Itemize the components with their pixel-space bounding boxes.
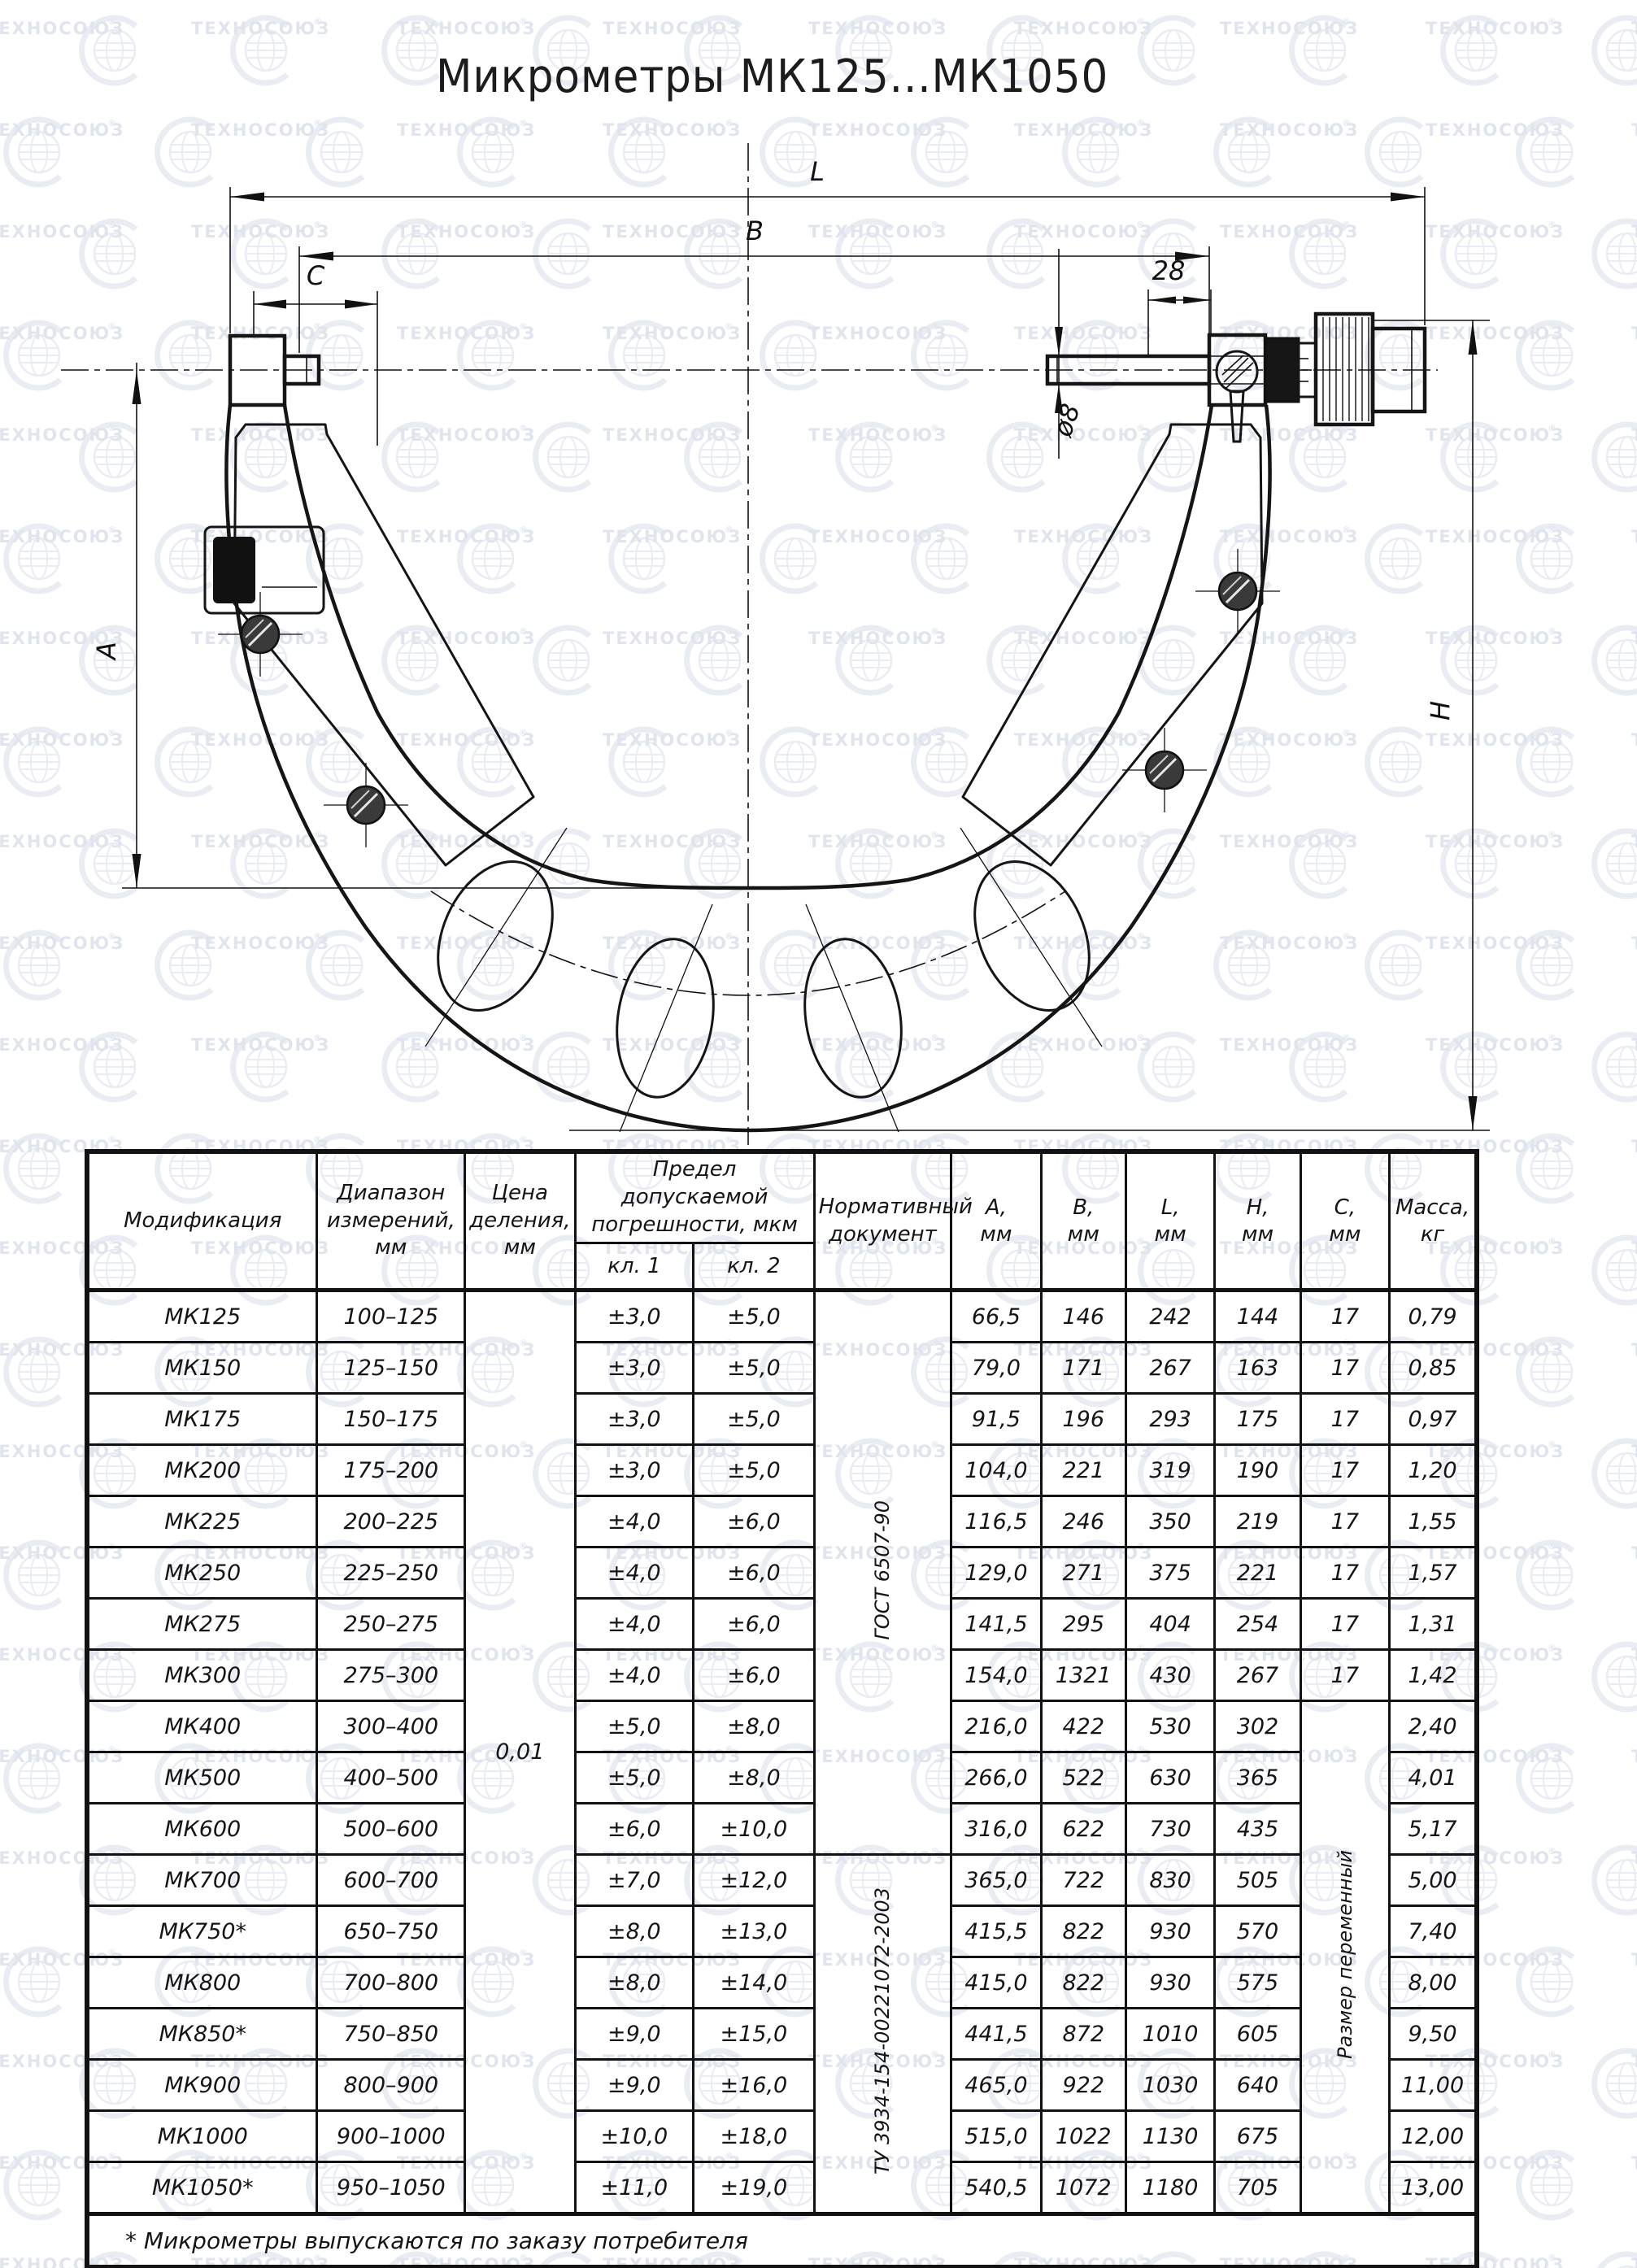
col-header-l-label: L, — [1130, 1195, 1210, 1221]
cell-modification: МК275 — [87, 1599, 317, 1650]
cell-a: 104,0 — [951, 1445, 1041, 1496]
col-header-l: L, мм — [1125, 1151, 1214, 1291]
watermark-text: ТЕХНОСОЮЗ — [1631, 1543, 1637, 1563]
watermark-text: ТЕХНОСОЮЗ — [1631, 19, 1637, 38]
cell-class1: ±5,0 — [575, 1701, 694, 1752]
cell-class1: ±3,0 — [575, 1445, 694, 1496]
cell-b: 922 — [1041, 2060, 1125, 2111]
cell-range: 175–200 — [317, 1445, 465, 1496]
watermark-reg-icon: ® — [1548, 2151, 1556, 2161]
cell-range: 150–175 — [317, 1394, 465, 1445]
cell-mass: 13,00 — [1390, 2162, 1477, 2214]
watermark-reg-icon: ® — [725, 118, 734, 128]
cell-range: 950–1050 — [317, 2162, 465, 2214]
cell-range: 300–400 — [317, 1701, 465, 1752]
cell-class2: ±15,0 — [694, 2009, 815, 2060]
cell-c: 17 — [1300, 1291, 1389, 1343]
col-header-h-unit: мм — [1219, 1221, 1295, 1248]
cell-h: 435 — [1215, 1804, 1300, 1855]
cell-b: 171 — [1041, 1343, 1125, 1394]
cell-c: 17 — [1300, 1650, 1389, 1701]
cell-norm-doc-gost-text: ГОСТ 6507-90 — [873, 1500, 892, 1640]
cell-division-value: 0,01 — [465, 1291, 575, 2214]
watermark-text: ТЕХНОСОЮЗ — [1631, 2255, 1637, 2268]
cell-h: 505 — [1215, 1855, 1300, 1906]
cell-b: 146 — [1041, 1291, 1125, 1343]
cell-a: 266,0 — [951, 1752, 1041, 1804]
cell-modification: МК800 — [87, 1957, 317, 2009]
watermark-reg-icon: ® — [1548, 1439, 1556, 1450]
frame-screws — [218, 549, 1280, 847]
spec-row: МК300275–300±4,0±6,0154,01321430267171,4… — [87, 1650, 1477, 1701]
cell-a: 79,0 — [951, 1343, 1041, 1394]
col-header-error-limit: Предел допускаемой погрешности, мкм — [575, 1151, 814, 1243]
col-header-c: С, мм — [1300, 1151, 1389, 1291]
cell-class2: ±8,0 — [694, 1701, 815, 1752]
cell-l: 319 — [1125, 1445, 1214, 1496]
spec-row: МК400300–400±5,0±8,0216,0422530302Размер… — [87, 1701, 1477, 1752]
cell-class1: ±10,0 — [575, 2111, 694, 2162]
spec-row: МК700600–700±7,0±12,0ТУ 3934-154-0022107… — [87, 1855, 1477, 1906]
watermark-reg-icon: ® — [725, 16, 734, 27]
cell-modification: МК200 — [87, 1445, 317, 1496]
cell-a: 415,0 — [951, 1957, 1041, 2009]
watermark-reg-icon: ® — [313, 118, 322, 128]
watermark-reg-icon: ® — [930, 16, 939, 27]
cell-b: 1072 — [1041, 2162, 1125, 2214]
col-header-b-label: В, — [1046, 1195, 1121, 1221]
cell-mass: 0,97 — [1390, 1394, 1477, 1445]
watermark-text: ТЕХНОСОЮЗ — [397, 19, 536, 38]
dimension-C: C — [254, 260, 377, 446]
watermark-reg-icon: ® — [1342, 118, 1351, 128]
cell-c: 17 — [1300, 1599, 1389, 1650]
cell-mass: 5,17 — [1390, 1804, 1477, 1855]
cell-class2: ±5,0 — [694, 1343, 815, 1394]
cell-h: 365 — [1215, 1752, 1300, 1804]
cell-range: 500–600 — [317, 1804, 465, 1855]
cell-mass: 5,00 — [1390, 1855, 1477, 1906]
cell-class1: ±5,0 — [575, 1752, 694, 1804]
cell-l: 1010 — [1125, 2009, 1214, 2060]
col-header-l-unit: мм — [1130, 1221, 1210, 1248]
col-header-class2: кл. 2 — [694, 1243, 815, 1291]
cell-c: 17 — [1300, 1548, 1389, 1599]
cell-b: 221 — [1041, 1445, 1125, 1496]
watermark-text: ТЕХНОСОЮЗ — [1631, 1747, 1637, 1766]
cell-a: 116,5 — [951, 1496, 1041, 1548]
cell-range: 800–900 — [317, 2060, 465, 2111]
watermark-text: ТЕХНОСОЮЗ — [1014, 19, 1153, 38]
micrometer-head — [1217, 314, 1425, 442]
cell-range: 125–150 — [317, 1343, 465, 1394]
col-header-mass-label: Масса, — [1394, 1195, 1471, 1221]
cell-class2: ±19,0 — [694, 2162, 815, 2214]
cell-a: 141,5 — [951, 1599, 1041, 1650]
cell-class1: ±8,0 — [575, 1906, 694, 1957]
screw-icon — [324, 763, 408, 847]
watermark-text: ТЕХНОСОЮЗ — [1426, 19, 1565, 38]
cell-class1: ±7,0 — [575, 1855, 694, 1906]
cell-a: 465,0 — [951, 2060, 1041, 2111]
dimension-28: 28 — [1148, 255, 1211, 355]
cell-mass: 8,00 — [1390, 1957, 1477, 2009]
dim-label-A: A — [91, 642, 122, 661]
cell-norm-doc-tu: ТУ 3934-154-00221072-2003 — [814, 1855, 951, 2214]
cell-l: 430 — [1125, 1650, 1214, 1701]
cell-h: 605 — [1215, 2009, 1300, 2060]
watermark-text: ТЕХНОСОЮЗ — [1220, 19, 1359, 38]
watermark-reg-icon: ® — [1548, 16, 1556, 27]
table-header: Модификация Диапазон измерений, мм Цена … — [87, 1151, 1477, 1291]
spec-row: МК125100–1250,01±3,0±5,0ГОСТ 6507-9066,5… — [87, 1291, 1477, 1343]
cell-h: 570 — [1215, 1906, 1300, 1957]
cell-c: 17 — [1300, 1445, 1389, 1496]
spec-row: МК175150–175±3,0±5,091,5196293175170,97 — [87, 1394, 1477, 1445]
screw-icon — [1195, 549, 1280, 633]
cell-class1: ±6,0 — [575, 1804, 694, 1855]
cell-class1: ±4,0 — [575, 1548, 694, 1599]
cell-l: 930 — [1125, 1906, 1214, 1957]
cell-mass: 0,79 — [1390, 1291, 1477, 1343]
spec-row: МК1000900–1000±10,0±18,0515,010221130675… — [87, 2111, 1477, 2162]
cell-modification: МК500 — [87, 1752, 317, 1804]
cell-modification: МК175 — [87, 1394, 317, 1445]
spec-row: МК200175–200±3,0±5,0104,0221319190171,20 — [87, 1445, 1477, 1496]
cell-b: 722 — [1041, 1855, 1125, 1906]
cell-h: 302 — [1215, 1701, 1300, 1752]
col-header-h-label: Н, — [1219, 1195, 1295, 1221]
spec-row: МК150125–150±3,0±5,079,0171267163170,85 — [87, 1343, 1477, 1394]
cell-mass: 11,00 — [1390, 2060, 1477, 2111]
cell-h: 144 — [1215, 1291, 1300, 1343]
cell-class1: ±4,0 — [575, 1650, 694, 1701]
col-header-b-unit: мм — [1046, 1221, 1121, 1248]
cell-l: 930 — [1125, 1957, 1214, 2009]
spec-table: Модификация Диапазон измерений, мм Цена … — [85, 1149, 1479, 2268]
cell-h: 675 — [1215, 2111, 1300, 2162]
cell-mass: 1,57 — [1390, 1548, 1477, 1599]
thimble-knurling — [1323, 317, 1369, 421]
cell-modification: МК850* — [87, 2009, 317, 2060]
dimension-B: B — [299, 215, 1209, 353]
cell-h: 175 — [1215, 1394, 1300, 1445]
cell-h: 190 — [1215, 1445, 1300, 1496]
cell-l: 630 — [1125, 1752, 1214, 1804]
cell-l: 293 — [1125, 1394, 1214, 1445]
cell-l: 1180 — [1125, 2162, 1214, 2214]
cell-norm-doc-gost: ГОСТ 6507-90 — [814, 1291, 951, 1855]
cell-b: 1321 — [1041, 1650, 1125, 1701]
cell-mass: 1,31 — [1390, 1599, 1477, 1650]
cell-h: 640 — [1215, 2060, 1300, 2111]
watermark-reg-icon: ® — [1548, 1236, 1556, 1247]
cell-modification: МК125 — [87, 1291, 317, 1343]
cell-class2: ±6,0 — [694, 1599, 815, 1650]
watermark-reg-icon: ® — [930, 118, 939, 128]
page-title: Микрометры МК125...МК1050 — [0, 50, 1545, 103]
cell-range: 225–250 — [317, 1548, 465, 1599]
page-title-text: Микрометры МК125...МК1050 — [436, 50, 1108, 103]
cell-b: 822 — [1041, 1906, 1125, 1957]
cell-class1: ±4,0 — [575, 1496, 694, 1548]
watermark-reg-icon: ® — [519, 16, 528, 27]
col-header-c-unit: мм — [1305, 1221, 1385, 1248]
cell-a: 316,0 — [951, 1804, 1041, 1855]
watermark-reg-icon: ® — [1548, 2049, 1556, 2060]
cell-l: 404 — [1125, 1599, 1214, 1650]
cell-class1: ±3,0 — [575, 1343, 694, 1394]
dimension-L: L — [230, 156, 1425, 333]
cell-l: 830 — [1125, 1855, 1214, 1906]
col-header-norm-doc: Нормативный документ — [814, 1151, 951, 1291]
cell-modification: МК250 — [87, 1548, 317, 1599]
watermark-text: ТЕХНОСОЮЗ — [191, 19, 330, 38]
watermark-reg-icon: ® — [1548, 1541, 1556, 1552]
spec-row: МК800700–800±8,0±14,0415,08229305758,00 — [87, 1957, 1477, 2009]
cell-b: 1022 — [1041, 2111, 1125, 2162]
watermark-text: ТЕХНОСОЮЗ — [0, 19, 124, 38]
cell-modification: МК225 — [87, 1496, 317, 1548]
cell-class1: ±3,0 — [575, 1291, 694, 1343]
cell-range: 250–275 — [317, 1599, 465, 1650]
cell-range: 700–800 — [317, 1957, 465, 2009]
cell-b: 246 — [1041, 1496, 1125, 1548]
cell-class2: ±5,0 — [694, 1394, 815, 1445]
col-header-c-label: С, — [1305, 1195, 1385, 1221]
col-header-a: А, мм — [951, 1151, 1041, 1291]
watermark-reg-icon: ® — [313, 16, 322, 27]
cell-b: 872 — [1041, 2009, 1125, 2060]
cell-range: 650–750 — [317, 1906, 465, 1957]
cell-range: 900–1000 — [317, 2111, 465, 2162]
col-header-h: Н, мм — [1215, 1151, 1300, 1291]
watermark-reg-icon: ® — [1548, 1846, 1556, 1857]
col-header-mass: Масса, кг — [1390, 1151, 1477, 1291]
cell-a: 415,5 — [951, 1906, 1041, 1957]
cell-range: 275–300 — [317, 1650, 465, 1701]
cell-class2: ±16,0 — [694, 2060, 815, 2111]
col-header-b: В, мм — [1041, 1151, 1125, 1291]
cell-a: 515,0 — [951, 2111, 1041, 2162]
table-footer: * Микрометры выпускаются по заказу потре… — [87, 2214, 1477, 2268]
cell-b: 295 — [1041, 1599, 1125, 1650]
cell-l: 242 — [1125, 1291, 1214, 1343]
spec-row: МК900800–900±9,0±16,0465,0922103064011,0… — [87, 2060, 1477, 2111]
catalog-page: ТЕХНОСОЮЗ®ТЕХНОСОЮЗ®ТЕХНОСОЮЗ®ТЕХНОСОЮЗ®… — [0, 0, 1637, 2268]
cell-class1: ±9,0 — [575, 2060, 694, 2111]
cell-l: 375 — [1125, 1548, 1214, 1599]
cell-a: 91,5 — [951, 1394, 1041, 1445]
cell-mass: 1,55 — [1390, 1496, 1477, 1548]
cell-class2: ±10,0 — [694, 1804, 815, 1855]
spec-row: МК275250–275±4,0±6,0141,5295404254171,31 — [87, 1599, 1477, 1650]
footnote-cell: * Микрометры выпускаются по заказу потре… — [87, 2214, 1477, 2268]
cell-class2: ±5,0 — [694, 1291, 815, 1343]
col-header-class1: кл. 1 — [575, 1243, 694, 1291]
cell-b: 196 — [1041, 1394, 1125, 1445]
cell-modification: МК900 — [87, 2060, 317, 2111]
cell-class2: ±18,0 — [694, 2111, 815, 2162]
cell-b: 822 — [1041, 1957, 1125, 2009]
frame-holes — [416, 828, 1111, 1132]
watermark-text: ТЕХНОСОЮЗ — [1631, 2052, 1637, 2071]
col-header-a-unit: мм — [956, 1221, 1036, 1248]
screw-icon — [218, 592, 303, 677]
spec-table-body: МК125100–1250,01±3,0±5,0ГОСТ 6507-9066,5… — [87, 1291, 1477, 2214]
watermark-reg-icon: ® — [107, 118, 116, 128]
screw-icon — [1122, 728, 1207, 812]
col-header-division: Цена деления, мм — [465, 1151, 575, 1291]
cell-modification: МК150 — [87, 1343, 317, 1394]
footnote-text: * Микрометры выпускаются по заказу потре… — [125, 2227, 748, 2254]
col-header-range: Диапазон измерений, мм — [317, 1151, 465, 1291]
watermark-text: ТЕХНОСОЮЗ — [1631, 1950, 1637, 1970]
watermark-reg-icon: ® — [519, 118, 528, 128]
cell-l: 1130 — [1125, 2111, 1214, 2162]
watermark-text: ТЕХНОСОЮЗ — [1631, 1442, 1637, 1461]
cell-class1: ±8,0 — [575, 1957, 694, 2009]
cell-a: 441,5 — [951, 2009, 1041, 2060]
cell-c: 17 — [1300, 1394, 1389, 1445]
cell-a: 129,0 — [951, 1548, 1041, 1599]
cell-b: 422 — [1041, 1701, 1125, 1752]
cell-a: 154,0 — [951, 1650, 1041, 1701]
cell-h: 575 — [1215, 1957, 1300, 2009]
cell-class1: ±11,0 — [575, 2162, 694, 2214]
cell-range: 750–850 — [317, 2009, 465, 2060]
watermark-reg-icon: ® — [1548, 1338, 1556, 1348]
cell-mass: 7,40 — [1390, 1906, 1477, 1957]
dim-label-H: H — [1425, 701, 1456, 720]
cell-class2: ±14,0 — [694, 1957, 815, 2009]
cell-mass: 12,00 — [1390, 2111, 1477, 2162]
cell-a: 216,0 — [951, 1701, 1041, 1752]
cell-class2: ±12,0 — [694, 1855, 815, 1906]
dimension-H: H — [569, 320, 1490, 1130]
col-header-modification: Модификация — [87, 1151, 317, 1291]
cell-b: 271 — [1041, 1548, 1125, 1599]
cell-c-variable-text: Размер переменный — [1335, 1850, 1355, 2059]
cell-mass: 1,42 — [1390, 1650, 1477, 1701]
cell-b: 622 — [1041, 1804, 1125, 1855]
brand-nameplate — [205, 527, 324, 613]
cell-h: 267 — [1215, 1650, 1300, 1701]
watermark-reg-icon: ® — [1548, 2253, 1556, 2263]
watermark-reg-icon: ® — [1548, 1744, 1556, 1755]
cell-l: 350 — [1125, 1496, 1214, 1548]
spindle-lock — [1217, 351, 1257, 442]
cell-h: 254 — [1215, 1599, 1300, 1650]
watermark-reg-icon: ® — [1136, 118, 1145, 128]
cell-class2: ±8,0 — [694, 1752, 815, 1804]
watermark-text: ТЕХНОСОЮЗ — [1631, 1848, 1637, 1868]
watermark-reg-icon: ® — [1548, 118, 1556, 128]
cell-h: 705 — [1215, 2162, 1300, 2214]
col-header-mass-unit: кг — [1394, 1221, 1471, 1248]
cell-c: 17 — [1300, 1343, 1389, 1394]
cell-l: 1030 — [1125, 2060, 1214, 2111]
cell-modification: МК750* — [87, 1906, 317, 1957]
brand-logo-mark — [213, 537, 255, 603]
dim-label-L: L — [810, 156, 825, 187]
cell-h: 219 — [1215, 1496, 1300, 1548]
cell-a: 540,5 — [951, 2162, 1041, 2214]
cell-class2: ±6,0 — [694, 1496, 815, 1548]
watermark-reg-icon: ® — [1136, 16, 1145, 27]
cell-mass: 9,50 — [1390, 2009, 1477, 2060]
spec-row: МК750*650–750±8,0±13,0415,58229305707,40 — [87, 1906, 1477, 1957]
cell-class1: ±3,0 — [575, 1394, 694, 1445]
watermark-reg-icon: ® — [107, 16, 116, 27]
cell-modification: МК400 — [87, 1701, 317, 1752]
dim-label-B: B — [746, 215, 764, 246]
watermark-text: ТЕХНОСОЮЗ — [1631, 1340, 1637, 1360]
watermark-reg-icon: ® — [1548, 1948, 1556, 1958]
spec-row: МК250225–250±4,0±6,0129,0271375221171,57 — [87, 1548, 1477, 1599]
cell-norm-doc-tu-text: ТУ 3934-154-00221072-2003 — [873, 1887, 892, 2174]
cell-mass: 0,85 — [1390, 1343, 1477, 1394]
cell-l: 267 — [1125, 1343, 1214, 1394]
cell-modification: МК1000 — [87, 2111, 317, 2162]
cell-h: 163 — [1215, 1343, 1300, 1394]
cell-b: 522 — [1041, 1752, 1125, 1804]
cell-class2: ±6,0 — [694, 1650, 815, 1701]
spec-row: МК850*750–850±9,0±15,0441,587210106059,5… — [87, 2009, 1477, 2060]
spec-row: МК600500–600±6,0±10,0316,06227304355,17 — [87, 1804, 1477, 1855]
spec-row: МК225200–225±4,0±6,0116,5246350219171,55 — [87, 1496, 1477, 1548]
cell-a: 365,0 — [951, 1855, 1041, 1906]
watermark-text: ТЕХНОСОЮЗ — [1631, 1645, 1637, 1665]
cell-class2: ±13,0 — [694, 1906, 815, 1957]
cell-modification: МК300 — [87, 1650, 317, 1701]
cell-range: 400–500 — [317, 1752, 465, 1804]
cell-c: 17 — [1300, 1496, 1389, 1548]
cell-class1: ±9,0 — [575, 2009, 694, 2060]
cell-h: 221 — [1215, 1548, 1300, 1599]
cell-range: 600–700 — [317, 1855, 465, 1906]
watermark-text: ТЕХНОСОЮЗ — [1631, 1238, 1637, 1258]
dim-label-28: 28 — [1152, 255, 1186, 286]
cell-modification: МК600 — [87, 1804, 317, 1855]
cell-class2: ±5,0 — [694, 1445, 815, 1496]
cell-modification: МК700 — [87, 1855, 317, 1906]
watermark-text: ТЕХНОСОЮЗ — [603, 19, 742, 38]
watermark-reg-icon: ® — [1342, 16, 1351, 27]
dimension-A: A — [91, 363, 760, 888]
cell-c-variable: Размер переменный — [1300, 1701, 1389, 2214]
cell-l: 530 — [1125, 1701, 1214, 1752]
dimension-dia8: ø8 — [1047, 249, 1086, 459]
cell-range: 100–125 — [317, 1291, 465, 1343]
cell-modification: МК1050* — [87, 2162, 317, 2214]
dim-label-dia8: ø8 — [1047, 400, 1086, 442]
micrometer-drawing: L B C 28 — [0, 130, 1637, 1151]
dim-label-C: C — [307, 260, 325, 291]
watermark-text: ТЕХНОСОЮЗ — [1631, 2153, 1637, 2173]
cell-class1: ±4,0 — [575, 1599, 694, 1650]
cell-mass: 1,20 — [1390, 1445, 1477, 1496]
cell-mass: 4,01 — [1390, 1752, 1477, 1804]
cell-mass: 2,40 — [1390, 1701, 1477, 1752]
watermark-reg-icon: ® — [1548, 1643, 1556, 1653]
spec-row: МК500400–500±5,0±8,0266,05226303654,01 — [87, 1752, 1477, 1804]
watermark-text: ТЕХНОСОЮЗ — [808, 19, 947, 38]
cell-class2: ±6,0 — [694, 1548, 815, 1599]
cell-a: 66,5 — [951, 1291, 1041, 1343]
cell-range: 200–225 — [317, 1496, 465, 1548]
cell-l: 730 — [1125, 1804, 1214, 1855]
